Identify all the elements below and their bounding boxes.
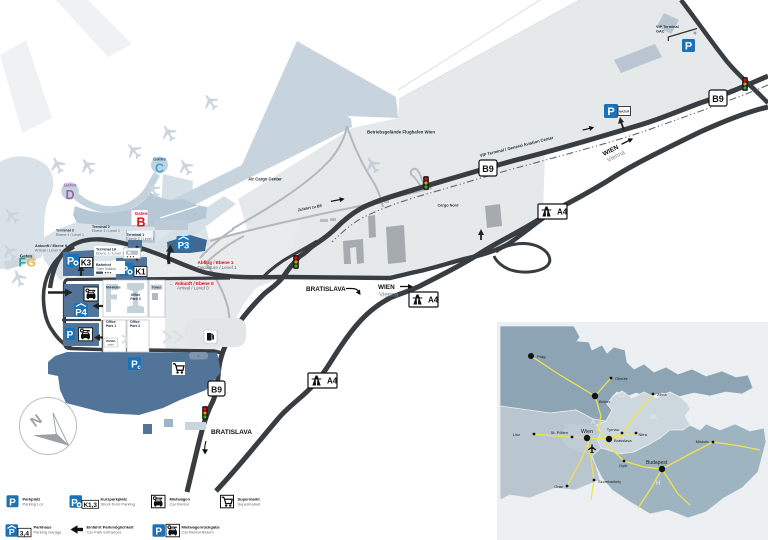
svg-text:Betriebsgelände Flughafen Wien: Betriebsgelände Flughafen Wien xyxy=(367,130,435,135)
svg-text:Linz: Linz xyxy=(513,432,520,437)
svg-text:D: D xyxy=(65,188,74,202)
svg-text:P: P xyxy=(685,41,692,53)
svg-text:Brünn: Brünn xyxy=(599,399,610,404)
svg-text:K1,3: K1,3 xyxy=(83,502,97,509)
svg-text:P3: P3 xyxy=(178,241,190,252)
svg-text:Szombathely: Szombathely xyxy=(598,479,621,484)
svg-text:K3: K3 xyxy=(81,259,92,268)
svg-text:Győr: Győr xyxy=(619,463,628,468)
svg-text:Supermarket: Supermarket xyxy=(238,501,262,506)
svg-text:Departure / Level 1: Departure / Level 1 xyxy=(198,265,238,270)
svg-text:Tower: Tower xyxy=(152,286,162,290)
svg-text:Parking Garage: Parking Garage xyxy=(34,529,63,534)
svg-text:Parking Lot: Parking Lot xyxy=(23,501,44,506)
svg-text:Tyrnau: Tyrnau xyxy=(607,427,619,432)
svg-text:Car Rental Return: Car Rental Return xyxy=(182,529,214,534)
svg-text:Gates: Gates xyxy=(64,183,77,188)
svg-text:Air Cargo Center: Air Cargo Center xyxy=(248,177,282,182)
svg-text:BRATISLAVA: BRATISLAVA xyxy=(211,429,252,436)
svg-text:Budapest: Budapest xyxy=(646,460,668,466)
svg-text:Ankunft / Ebene 0: Ankunft / Ebene 0 xyxy=(35,244,67,248)
svg-text:St. Pölten: St. Pölten xyxy=(551,430,568,435)
svg-text:Nitra: Nitra xyxy=(639,432,648,437)
svg-text:K1: K1 xyxy=(135,268,146,277)
svg-text:Park 2: Park 2 xyxy=(130,324,140,328)
svg-text:P: P xyxy=(607,106,614,118)
svg-text:MAZUR: MAZUR xyxy=(619,110,629,114)
svg-text:P4: P4 xyxy=(75,308,87,319)
svg-text:Short-Term Parking: Short-Term Parking xyxy=(101,501,135,506)
svg-text:Car Park Entrances: Car Park Entrances xyxy=(87,529,122,534)
svg-text:A4: A4 xyxy=(327,377,338,386)
svg-text:Arrival / Level 0: Arrival / Level 0 xyxy=(177,286,209,291)
svg-text:Cargo Nord: Cargo Nord xyxy=(438,204,460,208)
svg-text:F: F xyxy=(19,256,26,270)
svg-text:Train Station: Train Station xyxy=(96,267,116,271)
svg-text:VIENNA: VIENNA xyxy=(106,339,116,343)
svg-text:C: C xyxy=(155,162,164,176)
svg-text:Prag: Prag xyxy=(537,354,545,359)
svg-text:Arrival / Level 0: Arrival / Level 0 xyxy=(35,248,61,252)
svg-text:B: B xyxy=(136,216,145,230)
svg-text:←: ← xyxy=(191,265,196,270)
svg-text:Vienna: Vienna xyxy=(379,292,399,299)
svg-text:A: A xyxy=(591,420,595,426)
svg-text:Park 1: Park 1 xyxy=(106,324,116,328)
svg-text:B9: B9 xyxy=(211,385,222,395)
svg-text:Car Rental: Car Rental xyxy=(170,501,189,506)
svg-text:Wien: Wien xyxy=(581,429,593,435)
svg-text:Ebene 1 / Level 1: Ebene 1 / Level 1 xyxy=(56,233,84,237)
svg-text:Olmütz: Olmütz xyxy=(615,376,628,381)
svg-text:B9: B9 xyxy=(482,164,494,174)
svg-text:A4: A4 xyxy=(557,208,568,217)
svg-text:P: P xyxy=(71,498,78,509)
svg-text:CZ: CZ xyxy=(618,393,626,399)
svg-text:Park 3: Park 3 xyxy=(130,297,140,301)
svg-text:A4: A4 xyxy=(428,296,439,305)
svg-text:Bratislava: Bratislava xyxy=(614,438,632,443)
svg-text:G: G xyxy=(27,256,36,270)
svg-text:VIP Terminal: VIP Terminal xyxy=(656,25,679,29)
svg-text:Zilina: Zilina xyxy=(657,392,667,397)
svg-text:3,4: 3,4 xyxy=(20,531,30,538)
svg-text:Ebene 1 / Level 1: Ebene 1 / Level 1 xyxy=(96,252,124,256)
svg-text:H: H xyxy=(656,481,660,487)
svg-text:P: P xyxy=(9,497,16,508)
svg-text:P: P xyxy=(155,526,162,537)
svg-text:P: P xyxy=(67,256,74,268)
svg-text:NH-Hotel: NH-Hotel xyxy=(106,286,121,290)
svg-text:GAC: GAC xyxy=(656,30,665,34)
svg-text:Miskolc: Miskolc xyxy=(696,439,709,444)
svg-text:Ebene 1 / Level 1: Ebene 1 / Level 1 xyxy=(92,229,120,233)
svg-text:tower: tower xyxy=(108,343,114,347)
svg-text:BRATISLAVA: BRATISLAVA xyxy=(306,286,346,293)
svg-text:Graz: Graz xyxy=(554,484,563,489)
svg-text:Ebene 1 / Level 1: Ebene 1 / Level 1 xyxy=(127,237,155,241)
svg-text:WIEN: WIEN xyxy=(378,284,395,291)
svg-text:P: P xyxy=(9,527,15,537)
svg-text:B9: B9 xyxy=(712,94,724,104)
svg-text:SK: SK xyxy=(649,415,657,421)
svg-text:P: P xyxy=(67,330,74,341)
